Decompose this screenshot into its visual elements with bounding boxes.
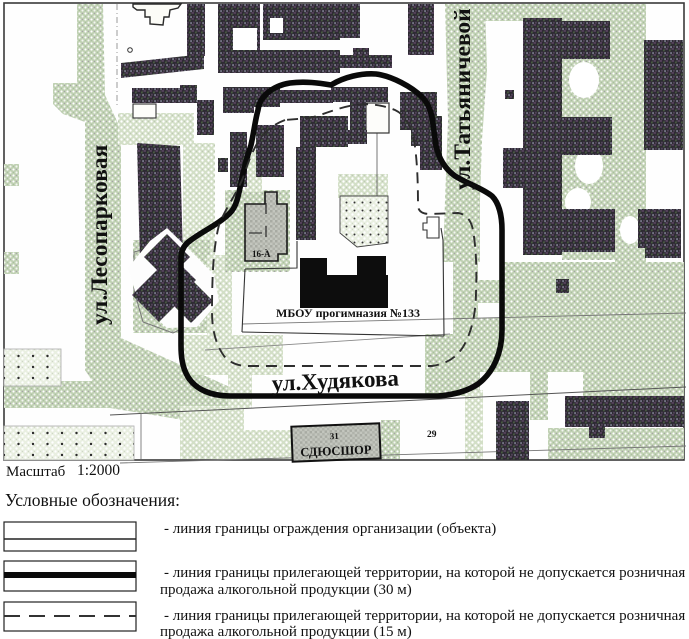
svg-text:ул.Татьяничевой: ул.Татьяничевой <box>450 8 476 190</box>
svg-text:ул.Лесопарковая: ул.Лесопарковая <box>87 144 113 325</box>
svg-text:СДЮСШОР: СДЮСШОР <box>300 443 372 460</box>
svg-text:16-А: 16-А <box>252 249 271 259</box>
svg-text:продажа алкогольной продукции: продажа алкогольной продукции (30 м) <box>160 582 412 598</box>
svg-text:- линия границы прилегающей те: - линия границы прилегающей территории, … <box>164 608 685 624</box>
svg-text:1:2000: 1:2000 <box>77 462 120 479</box>
svg-text:29: 29 <box>427 430 437 440</box>
svg-text:31: 31 <box>330 431 340 441</box>
svg-text:- линия границы прилегающей те: - линия границы прилегающей территории, … <box>164 565 685 581</box>
svg-text:Масштаб: Масштаб <box>6 464 66 480</box>
svg-text:продажа алкогольной продукции: продажа алкогольной продукции (15 м) <box>160 624 412 639</box>
svg-text:Условные обозначения:: Условные обозначения: <box>5 490 180 510</box>
svg-text:МБОУ прогимназия №133: МБОУ прогимназия №133 <box>276 306 420 320</box>
svg-text:- линия границы ограждения орг: - линия границы ограждения организации (… <box>164 521 496 537</box>
